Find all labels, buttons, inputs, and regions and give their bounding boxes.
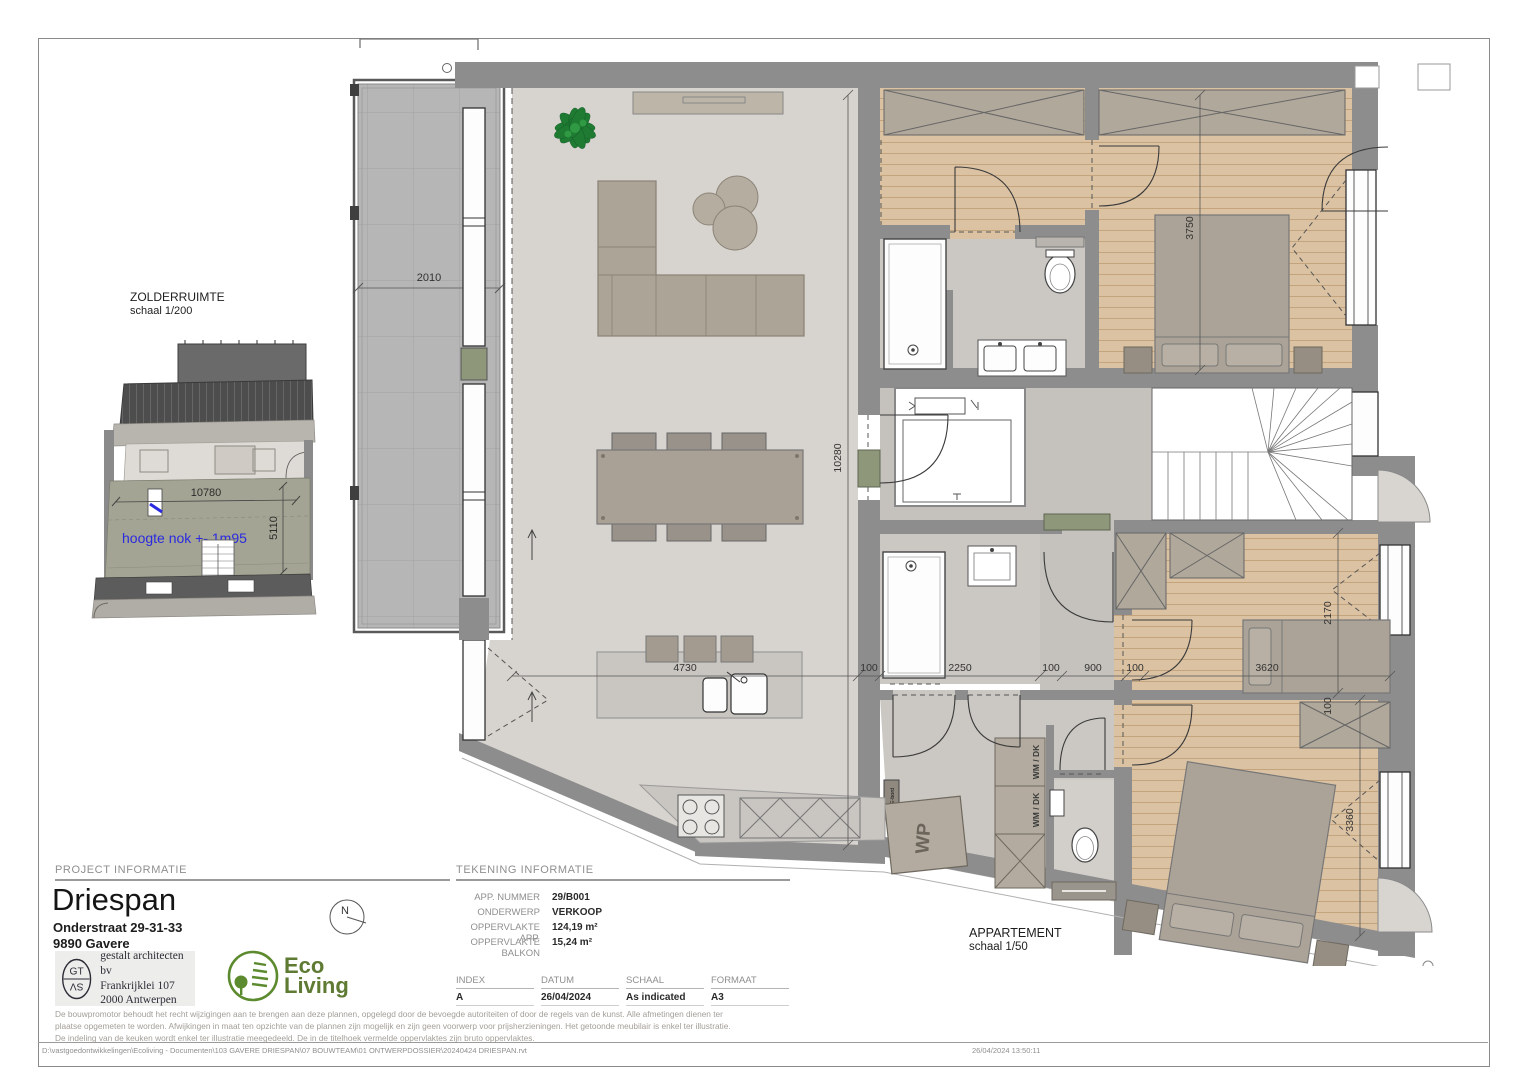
project-title: Driespan [52, 882, 176, 918]
survey-point [443, 64, 452, 73]
architect-name: gestalt architecten bv [100, 949, 191, 979]
zolder-attic-floor: 10780 5110 hoogte nok +- 1m95 [105, 478, 310, 584]
dim-bath: 2250 [948, 662, 972, 674]
meta-label: SCHAAL [626, 975, 704, 989]
meta-value: 26/04/2024 [541, 992, 619, 1006]
architect-block: GT SV gestalt architecten bv Frankrijkle… [55, 951, 195, 1006]
meta-value: As indicated [626, 992, 704, 1006]
zolder-title: ZOLDERRUIMTE [130, 290, 225, 304]
file-path: D:\vastgoedontwikkelingen\Ecoliving - Do… [42, 1046, 527, 1055]
drawing-sheet: ZOLDERRUIMTE schaal 1/200 [0, 0, 1527, 1080]
curved-wall-lower [1378, 878, 1432, 932]
meta-value: A [456, 992, 534, 1006]
shower1 [884, 239, 946, 369]
cooktop [678, 795, 724, 837]
zolder-scale: schaal 1/200 [130, 305, 192, 317]
living-label: Living [284, 976, 349, 996]
nightstand [1122, 900, 1158, 935]
sink2 [1024, 346, 1056, 371]
dim-wall-1: 100 [860, 662, 878, 674]
nightstand [1294, 347, 1322, 373]
wm-dk-label-2: WM / DK [1031, 792, 1041, 827]
north-arrow-icon: N [326, 896, 370, 938]
field-value: VERKOOP [552, 907, 602, 918]
disclaimer-text: De bouwpromotor behoudt het recht wijzig… [55, 1008, 743, 1044]
coffee-table-3 [713, 206, 757, 250]
island-sink-small [703, 678, 727, 712]
eco-living-logo: Eco Living [224, 947, 349, 1005]
apartment-plan-title: APPARTEMENT [969, 926, 1062, 940]
drawing-info-fields: APP. NUMMER 29/B001 ONDERWERP VERKOOP OP… [456, 892, 602, 952]
field-label: OPPERVLAKTE BALKON [456, 937, 540, 959]
field-label: APP. NUMMER [456, 892, 540, 903]
field-row: OPPERVLAKTE BALKON 15,24 m² [456, 937, 602, 952]
meta-label: INDEX [456, 975, 534, 989]
field-row: OPPERVLAKTE APP. 124,19 m² [456, 922, 602, 937]
toilet1 [1045, 255, 1075, 293]
wp-label: WP [912, 822, 935, 854]
project-address-street: Onderstraat 29-31-33 [53, 920, 182, 935]
island-sink-large [731, 674, 767, 714]
nightstand [1313, 940, 1349, 966]
sink1 [984, 346, 1016, 371]
meta-label: FORMAAT [711, 975, 789, 989]
dim-bed3-depth: 3360 [1344, 808, 1356, 832]
dim-master: 3750 [1184, 216, 1196, 240]
zolder-dim-depth: 5110 [268, 516, 280, 540]
dim-wall-2: 100 [1042, 662, 1060, 674]
zolder-roof [112, 340, 315, 446]
dim-bed2-depth: 2170 [1322, 601, 1334, 625]
zolder-dim-width: 10780 [191, 487, 222, 499]
field-row: ONDERWERP VERKOOP [456, 907, 602, 922]
dining-table [597, 450, 803, 524]
north-label: N [341, 905, 349, 917]
zolder-facade [92, 574, 316, 618]
curved-wall-upper [1378, 470, 1430, 522]
meta-label: DATUM [541, 975, 619, 989]
project-info-header: PROJECT INFORMATIE [55, 864, 450, 881]
field-row: APP. NUMMER 29/B001 [456, 892, 602, 907]
zolder-plan: 10780 5110 hoogte nok +- 1m95 [90, 330, 330, 630]
dim-living: 10280 [832, 443, 844, 472]
hand-basin [1050, 790, 1064, 816]
dim-balcony: 2010 [417, 272, 441, 284]
meta-col: SCHAAL As indicated [626, 975, 704, 1006]
field-label: ONDERWERP [456, 907, 540, 918]
architect-city: 2000 Antwerpen [100, 993, 191, 1008]
bedroom2-bed [1243, 620, 1390, 693]
meta-col: FORMAAT A3 [711, 975, 789, 1006]
drawing-info-header: TEKENING INFORMATIE [456, 864, 790, 881]
toilet2 [1072, 828, 1098, 862]
section-mark [360, 39, 478, 50]
apartment-floor-plan: 2010 [340, 36, 1452, 966]
svg-text:SV: SV [70, 980, 84, 991]
meta-col: DATUM 26/04/2024 [541, 975, 619, 1006]
dim-bed2-width: 3620 [1255, 662, 1279, 674]
drawing-meta: INDEX A DATUM 26/04/2024 SCHAAL As indic… [456, 975, 789, 1006]
wm-dk-label-1: WM / DK [1031, 744, 1041, 779]
field-value: 29/B001 [552, 892, 590, 903]
meta-value: A3 [711, 992, 789, 1006]
apartment-plan-scale: schaal 1/50 [969, 941, 1028, 953]
dim-kitchen: 4730 [673, 662, 697, 674]
dim-wall-4: 100 [1322, 697, 1334, 715]
tech-room [895, 388, 1025, 506]
eco-living-icon [224, 947, 282, 1005]
shelf [1036, 237, 1084, 247]
field-value: 124,19 m² [552, 922, 598, 933]
meta-col: INDEX A [456, 975, 534, 1006]
field-value: 15,24 m² [552, 937, 592, 948]
dim-wall-3: 100 [1126, 662, 1144, 674]
e-bord-label: E-bord [890, 788, 896, 805]
dim-hall: 900 [1084, 662, 1102, 674]
svg-text:GT: GT [70, 966, 84, 977]
shower2 [883, 552, 945, 678]
timestamp: 26/04/2024 13:50:11 [972, 1046, 1040, 1055]
bar-stools [646, 636, 753, 662]
architect-street: Frankrijklei 107 [100, 979, 191, 994]
footer-divider [38, 1042, 1488, 1043]
nightstand [1124, 347, 1152, 373]
architect-logo-icon: GT SV [59, 954, 94, 1004]
staircase [1152, 388, 1352, 520]
